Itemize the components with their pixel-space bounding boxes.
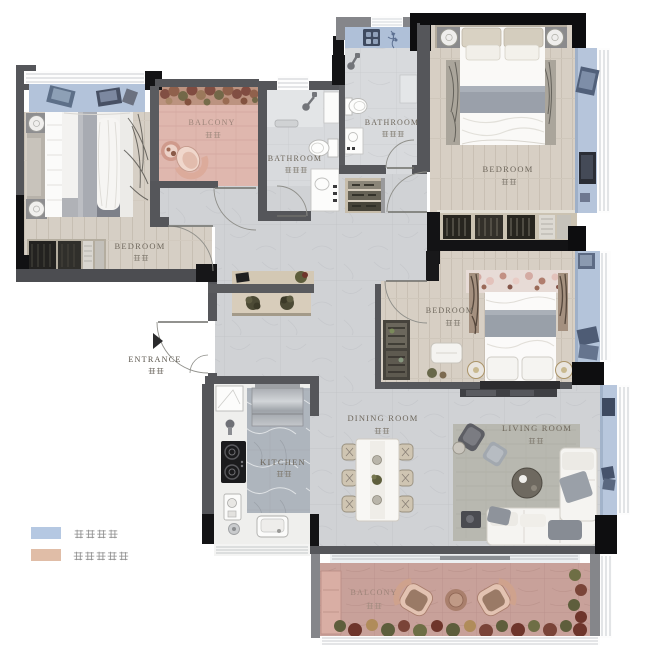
svg-text:BALCONY: BALCONY	[188, 118, 235, 127]
svg-text:BEDROOM: BEDROOM	[115, 241, 166, 251]
svg-text:DINING ROOM: DINING ROOM	[347, 413, 418, 423]
svg-text:BEDROOM: BEDROOM	[483, 164, 534, 174]
svg-text:KITCHEN: KITCHEN	[260, 457, 306, 467]
svg-text:BATHROOM: BATHROOM	[268, 154, 323, 163]
svg-text:BEDROOM: BEDROOM	[426, 306, 474, 315]
svg-text:BALCONY: BALCONY	[350, 588, 397, 597]
svg-text:LIVING ROOM: LIVING ROOM	[502, 423, 572, 433]
svg-text:BATHROOM: BATHROOM	[365, 118, 420, 127]
svg-text:ENTRANCE: ENTRANCE	[128, 355, 181, 364]
